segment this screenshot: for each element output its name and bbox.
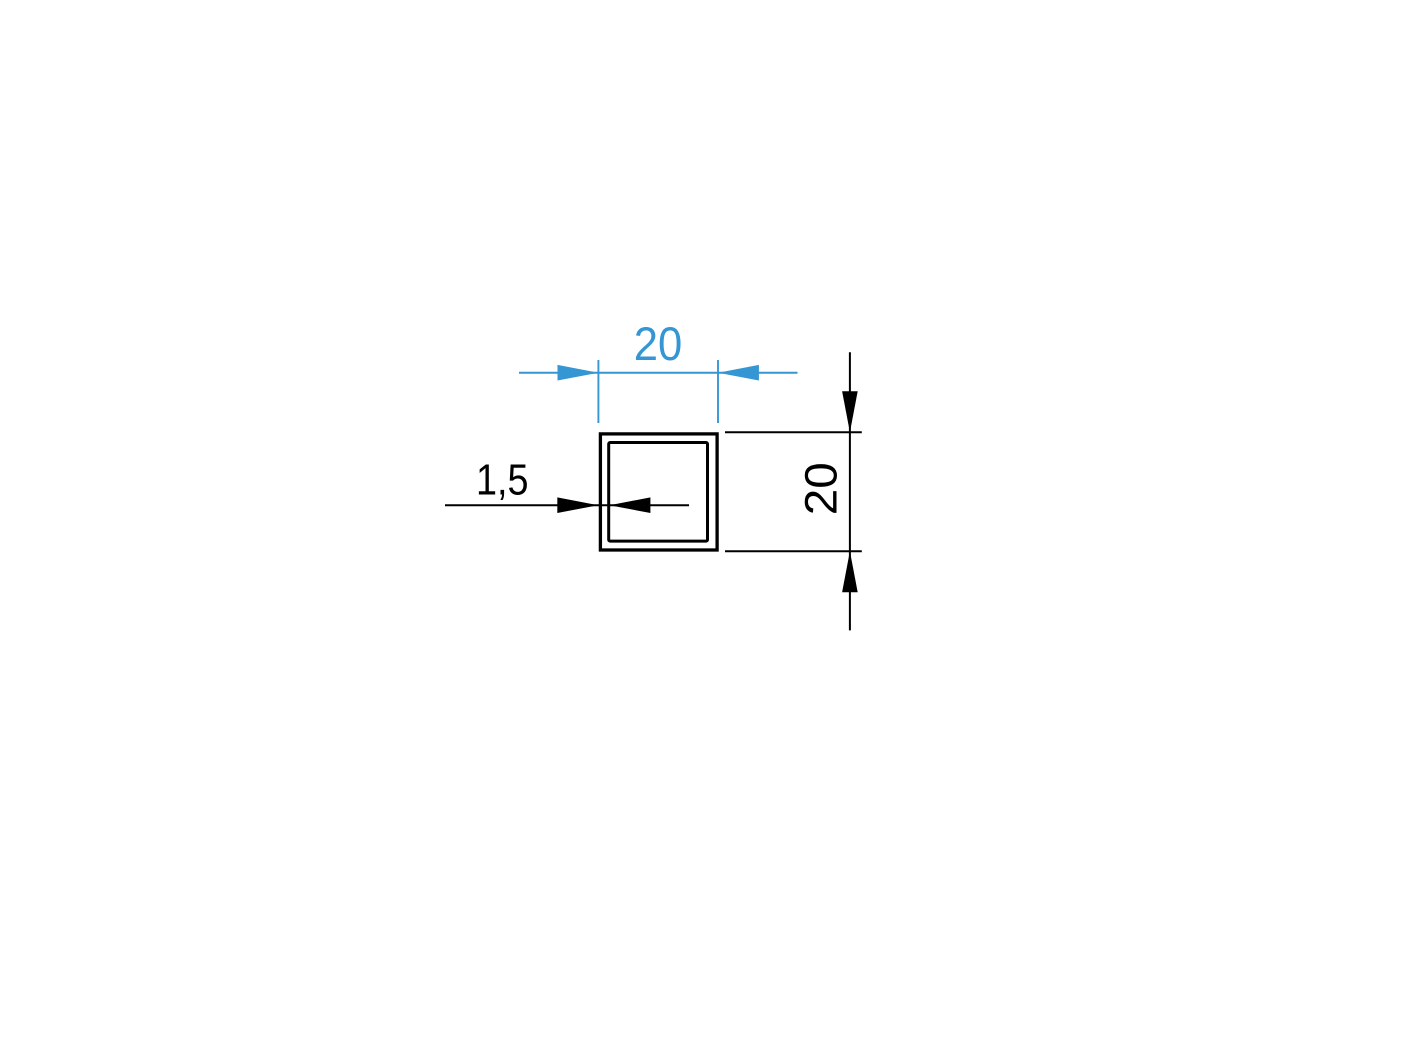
svg-text:1,5: 1,5: [476, 457, 529, 505]
svg-text:20: 20: [796, 462, 847, 515]
svg-text:20: 20: [634, 317, 683, 370]
